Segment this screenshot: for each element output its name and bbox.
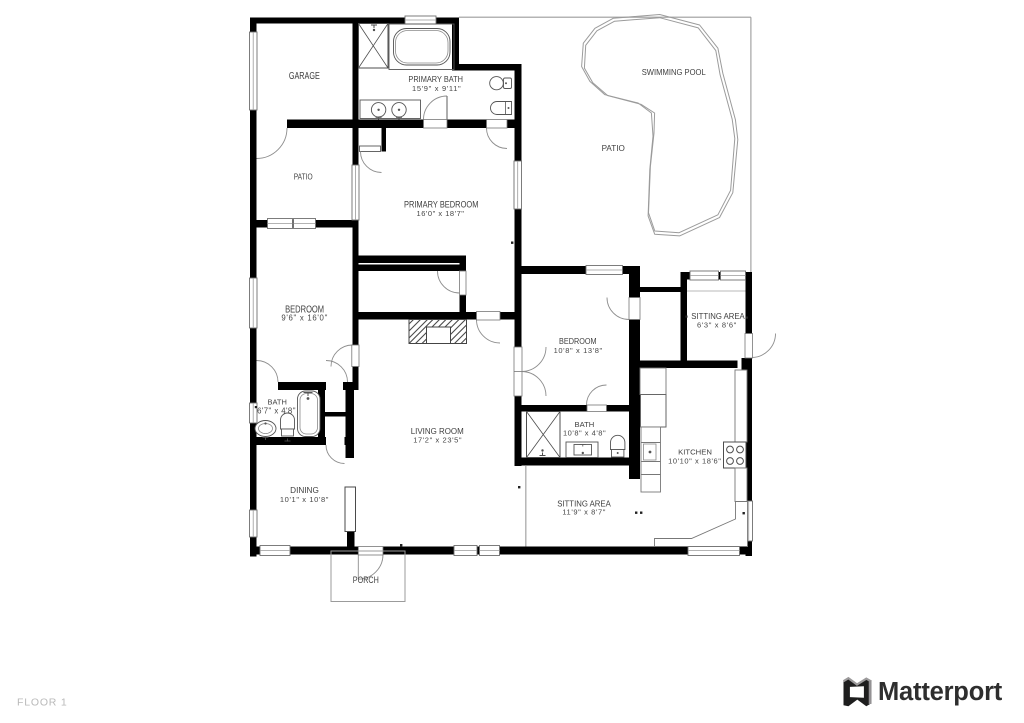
svg-text:PORCH: PORCH [353, 574, 379, 585]
svg-text:17'2" x 23'5": 17'2" x 23'5" [413, 436, 462, 445]
svg-text:6'7" x 4'8": 6'7" x 4'8" [257, 406, 296, 415]
svg-text:6'3" x 8'6": 6'3" x 8'6" [697, 321, 737, 330]
svg-text:10'1" x 10'8": 10'1" x 10'8" [280, 495, 329, 504]
svg-text:SWIMMING POOL: SWIMMING POOL [642, 68, 707, 77]
svg-text:GARAGE: GARAGE [289, 70, 320, 81]
svg-text:PRIMARY BATH: PRIMARY BATH [408, 75, 463, 84]
svg-text:10'10" x 18'6": 10'10" x 18'6" [668, 457, 721, 466]
svg-text:BEDROOM: BEDROOM [559, 337, 597, 347]
svg-text:16'0" x 18'7": 16'0" x 18'7" [417, 209, 465, 218]
svg-text:10'8" x 13'8": 10'8" x 13'8" [554, 346, 603, 355]
svg-text:PATIO: PATIO [294, 172, 313, 182]
svg-text:KITCHEN: KITCHEN [678, 448, 712, 457]
svg-text:FLOOR 1: FLOOR 1 [17, 697, 68, 709]
svg-text:9'6" x 16'0": 9'6" x 16'0" [281, 314, 328, 323]
svg-text:PATIO: PATIO [602, 144, 626, 153]
svg-text:BATH: BATH [268, 397, 287, 406]
svg-text:Matterport: Matterport [878, 678, 1003, 706]
svg-text:15'9" x 9'11": 15'9" x 9'11" [412, 84, 461, 93]
svg-text:10'8" x 4'8": 10'8" x 4'8" [563, 428, 606, 437]
svg-text:11'9" x 8'7": 11'9" x 8'7" [562, 508, 606, 517]
